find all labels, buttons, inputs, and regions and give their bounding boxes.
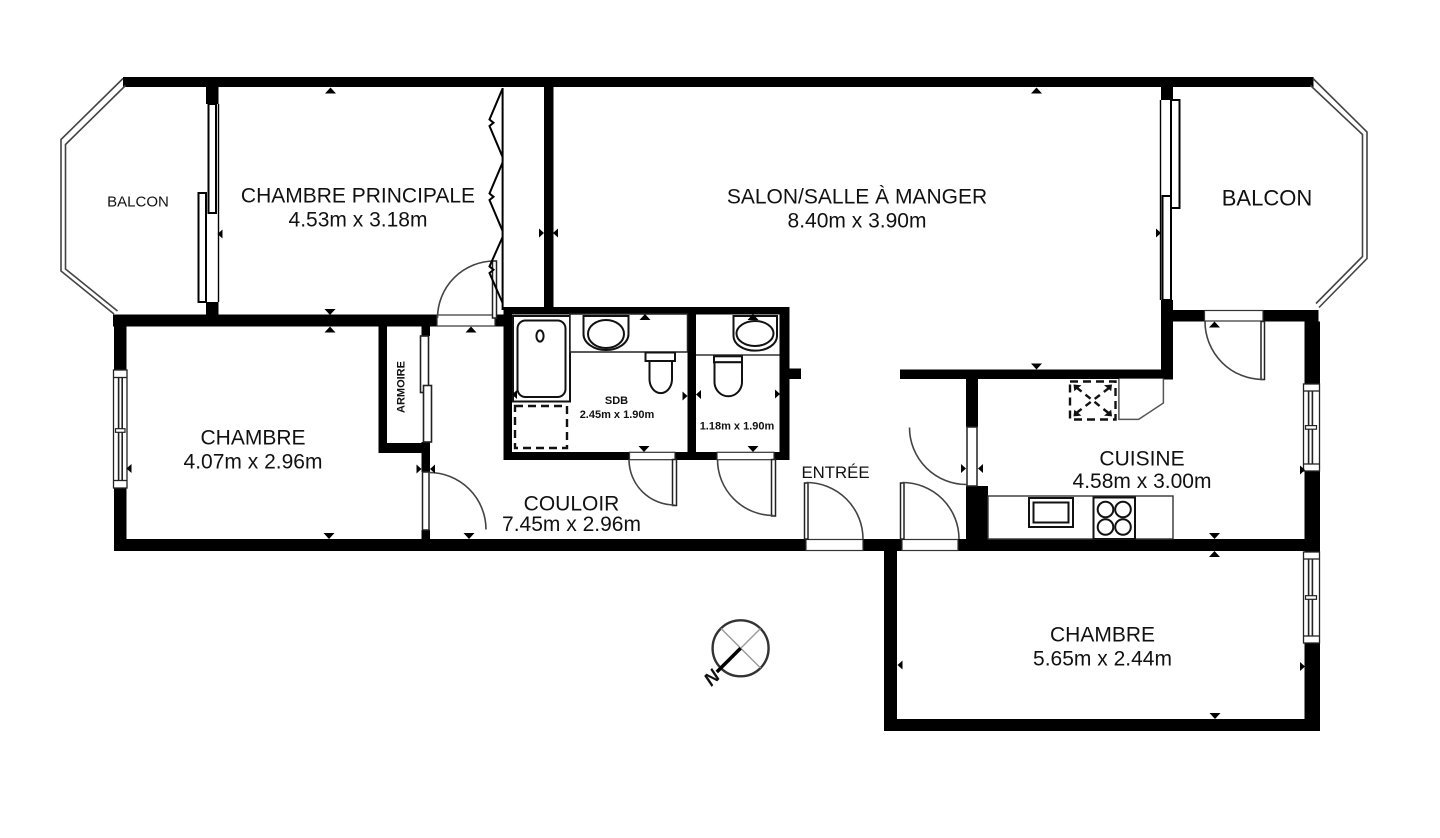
svg-text:ENTRÉE: ENTRÉE: [801, 463, 869, 482]
svg-text:8.40m x 3.90m: 8.40m x 3.90m: [788, 210, 927, 233]
svg-text:CHAMBRE PRINCIPALE: CHAMBRE PRINCIPALE: [241, 185, 475, 208]
svg-text:CHAMBRE: CHAMBRE: [200, 427, 305, 450]
svg-text:CUISINE: CUISINE: [1099, 448, 1184, 471]
svg-text:1.18m x 1.90m: 1.18m x 1.90m: [700, 421, 775, 433]
svg-text:4.58m x 3.00m: 4.58m x 3.00m: [1073, 470, 1212, 493]
svg-text:4.53m x 3.18m: 4.53m x 3.18m: [289, 209, 428, 232]
svg-text:ARMOIRE: ARMOIRE: [396, 361, 408, 413]
svg-text:CHAMBRE: CHAMBRE: [1050, 624, 1155, 647]
svg-text:SALON/SALLE À MANGER: SALON/SALLE À MANGER: [727, 186, 987, 209]
svg-text:BALCON: BALCON: [1222, 186, 1312, 211]
svg-text:2.45m x 1.90m: 2.45m x 1.90m: [580, 409, 655, 421]
svg-text:4.07m x 2.96m: 4.07m x 2.96m: [184, 451, 323, 474]
svg-text:BALCON: BALCON: [107, 194, 169, 211]
svg-text:7.45m x 2.96m: 7.45m x 2.96m: [502, 513, 641, 536]
svg-text:SDB: SDB: [605, 395, 628, 407]
svg-text:5.65m x 2.44m: 5.65m x 2.44m: [1033, 648, 1172, 671]
